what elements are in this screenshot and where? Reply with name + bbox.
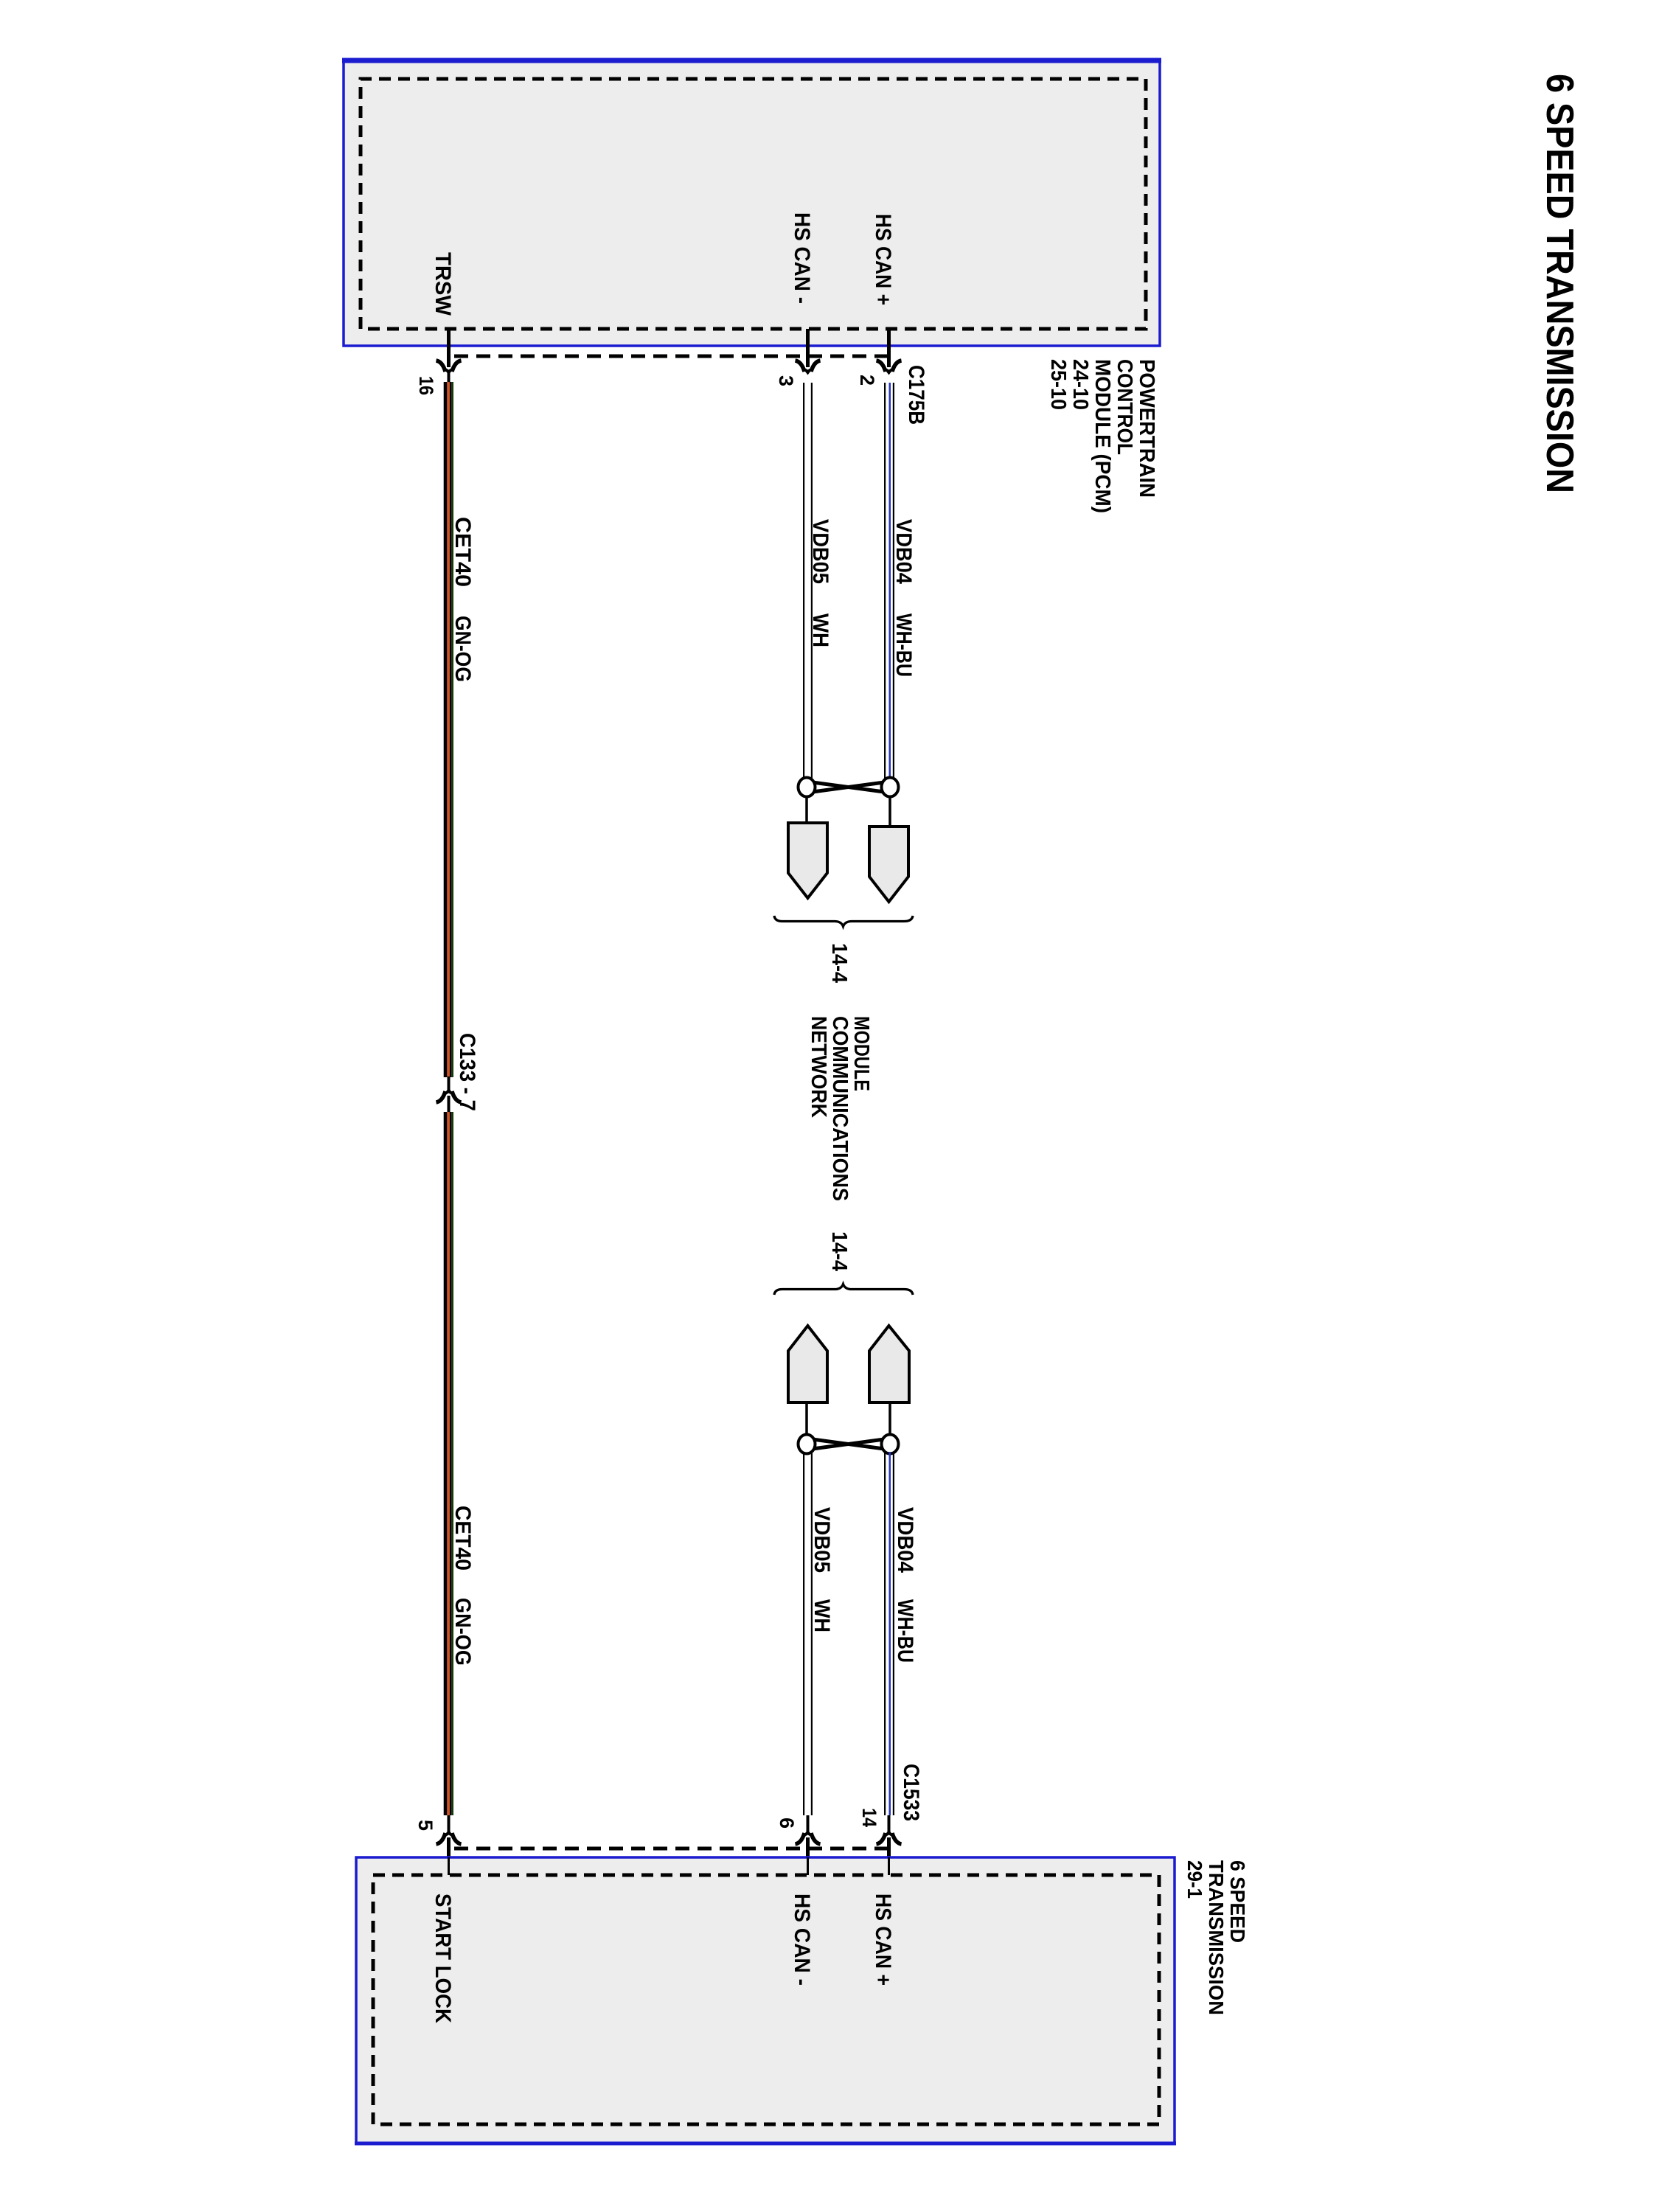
svg-text:CONTROL: CONTROL	[1113, 359, 1136, 455]
svg-text:HS CAN +: HS CAN +	[871, 1893, 895, 1986]
svg-text:POWERTRAIN: POWERTRAIN	[1135, 359, 1158, 498]
svg-text:MODULE: MODULE	[849, 1016, 873, 1091]
svg-text:29-1: 29-1	[1183, 1860, 1206, 1899]
svg-text:WH: WH	[810, 1599, 834, 1632]
svg-text:WH-BU: WH-BU	[891, 613, 916, 677]
svg-text:C1533: C1533	[899, 1764, 923, 1821]
svg-text:TRSW: TRSW	[431, 252, 455, 316]
svg-text:NETWORK: NETWORK	[807, 1016, 830, 1118]
svg-text:HS CAN -: HS CAN -	[790, 1893, 814, 1986]
svg-text:WH: WH	[808, 613, 832, 647]
svg-text:14-4: 14-4	[827, 1231, 851, 1271]
svg-text:CET40: CET40	[451, 517, 475, 587]
svg-text:14-4: 14-4	[827, 943, 851, 983]
svg-text:MODULE (PCM): MODULE (PCM)	[1091, 359, 1114, 513]
svg-text:GN-OG: GN-OG	[451, 616, 475, 682]
svg-text:24-10: 24-10	[1068, 359, 1092, 410]
svg-text:CET40: CET40	[451, 1506, 475, 1571]
svg-text:3: 3	[775, 375, 797, 386]
svg-text:6 SPEED: 6 SPEED	[1226, 1860, 1249, 1943]
svg-text:START LOCK: START LOCK	[431, 1893, 455, 2023]
svg-text:HS CAN +: HS CAN +	[871, 214, 895, 305]
svg-text:C175B: C175B	[904, 365, 928, 425]
svg-text:TRANSMISSION: TRANSMISSION	[1205, 1860, 1228, 2015]
svg-text:VDB05: VDB05	[810, 1507, 834, 1573]
svg-text:2: 2	[856, 375, 878, 386]
svg-text:6: 6	[776, 1818, 798, 1829]
svg-text:VDB04: VDB04	[893, 1507, 917, 1573]
svg-text:WH-BU: WH-BU	[893, 1599, 917, 1663]
svg-text:COMMUNICATIONS: COMMUNICATIONS	[828, 1016, 852, 1201]
svg-text:GN-OG: GN-OG	[451, 1598, 475, 1666]
svg-text:HS CAN -: HS CAN -	[790, 212, 814, 304]
svg-text:VDB05: VDB05	[808, 519, 832, 584]
svg-text:6 SPEED TRANSMISSION: 6 SPEED TRANSMISSION	[1538, 74, 1581, 493]
svg-text:14: 14	[858, 1808, 880, 1827]
svg-text:16: 16	[415, 376, 437, 395]
svg-text:VDB04: VDB04	[891, 519, 916, 584]
svg-text:C133 - 7: C133 - 7	[455, 1033, 479, 1111]
svg-text:25-10: 25-10	[1046, 359, 1070, 410]
svg-text:5: 5	[414, 1820, 437, 1831]
